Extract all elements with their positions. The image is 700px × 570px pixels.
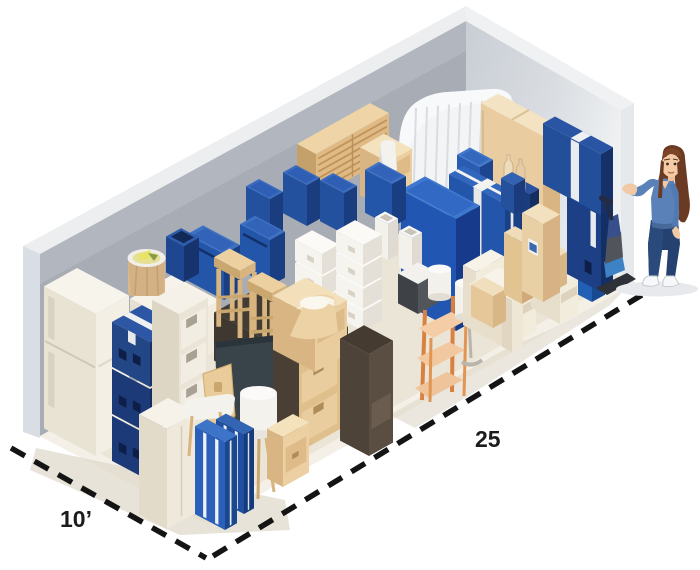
svg-text:10’: 10’ xyxy=(60,506,92,532)
svg-text:25: 25 xyxy=(475,426,501,452)
